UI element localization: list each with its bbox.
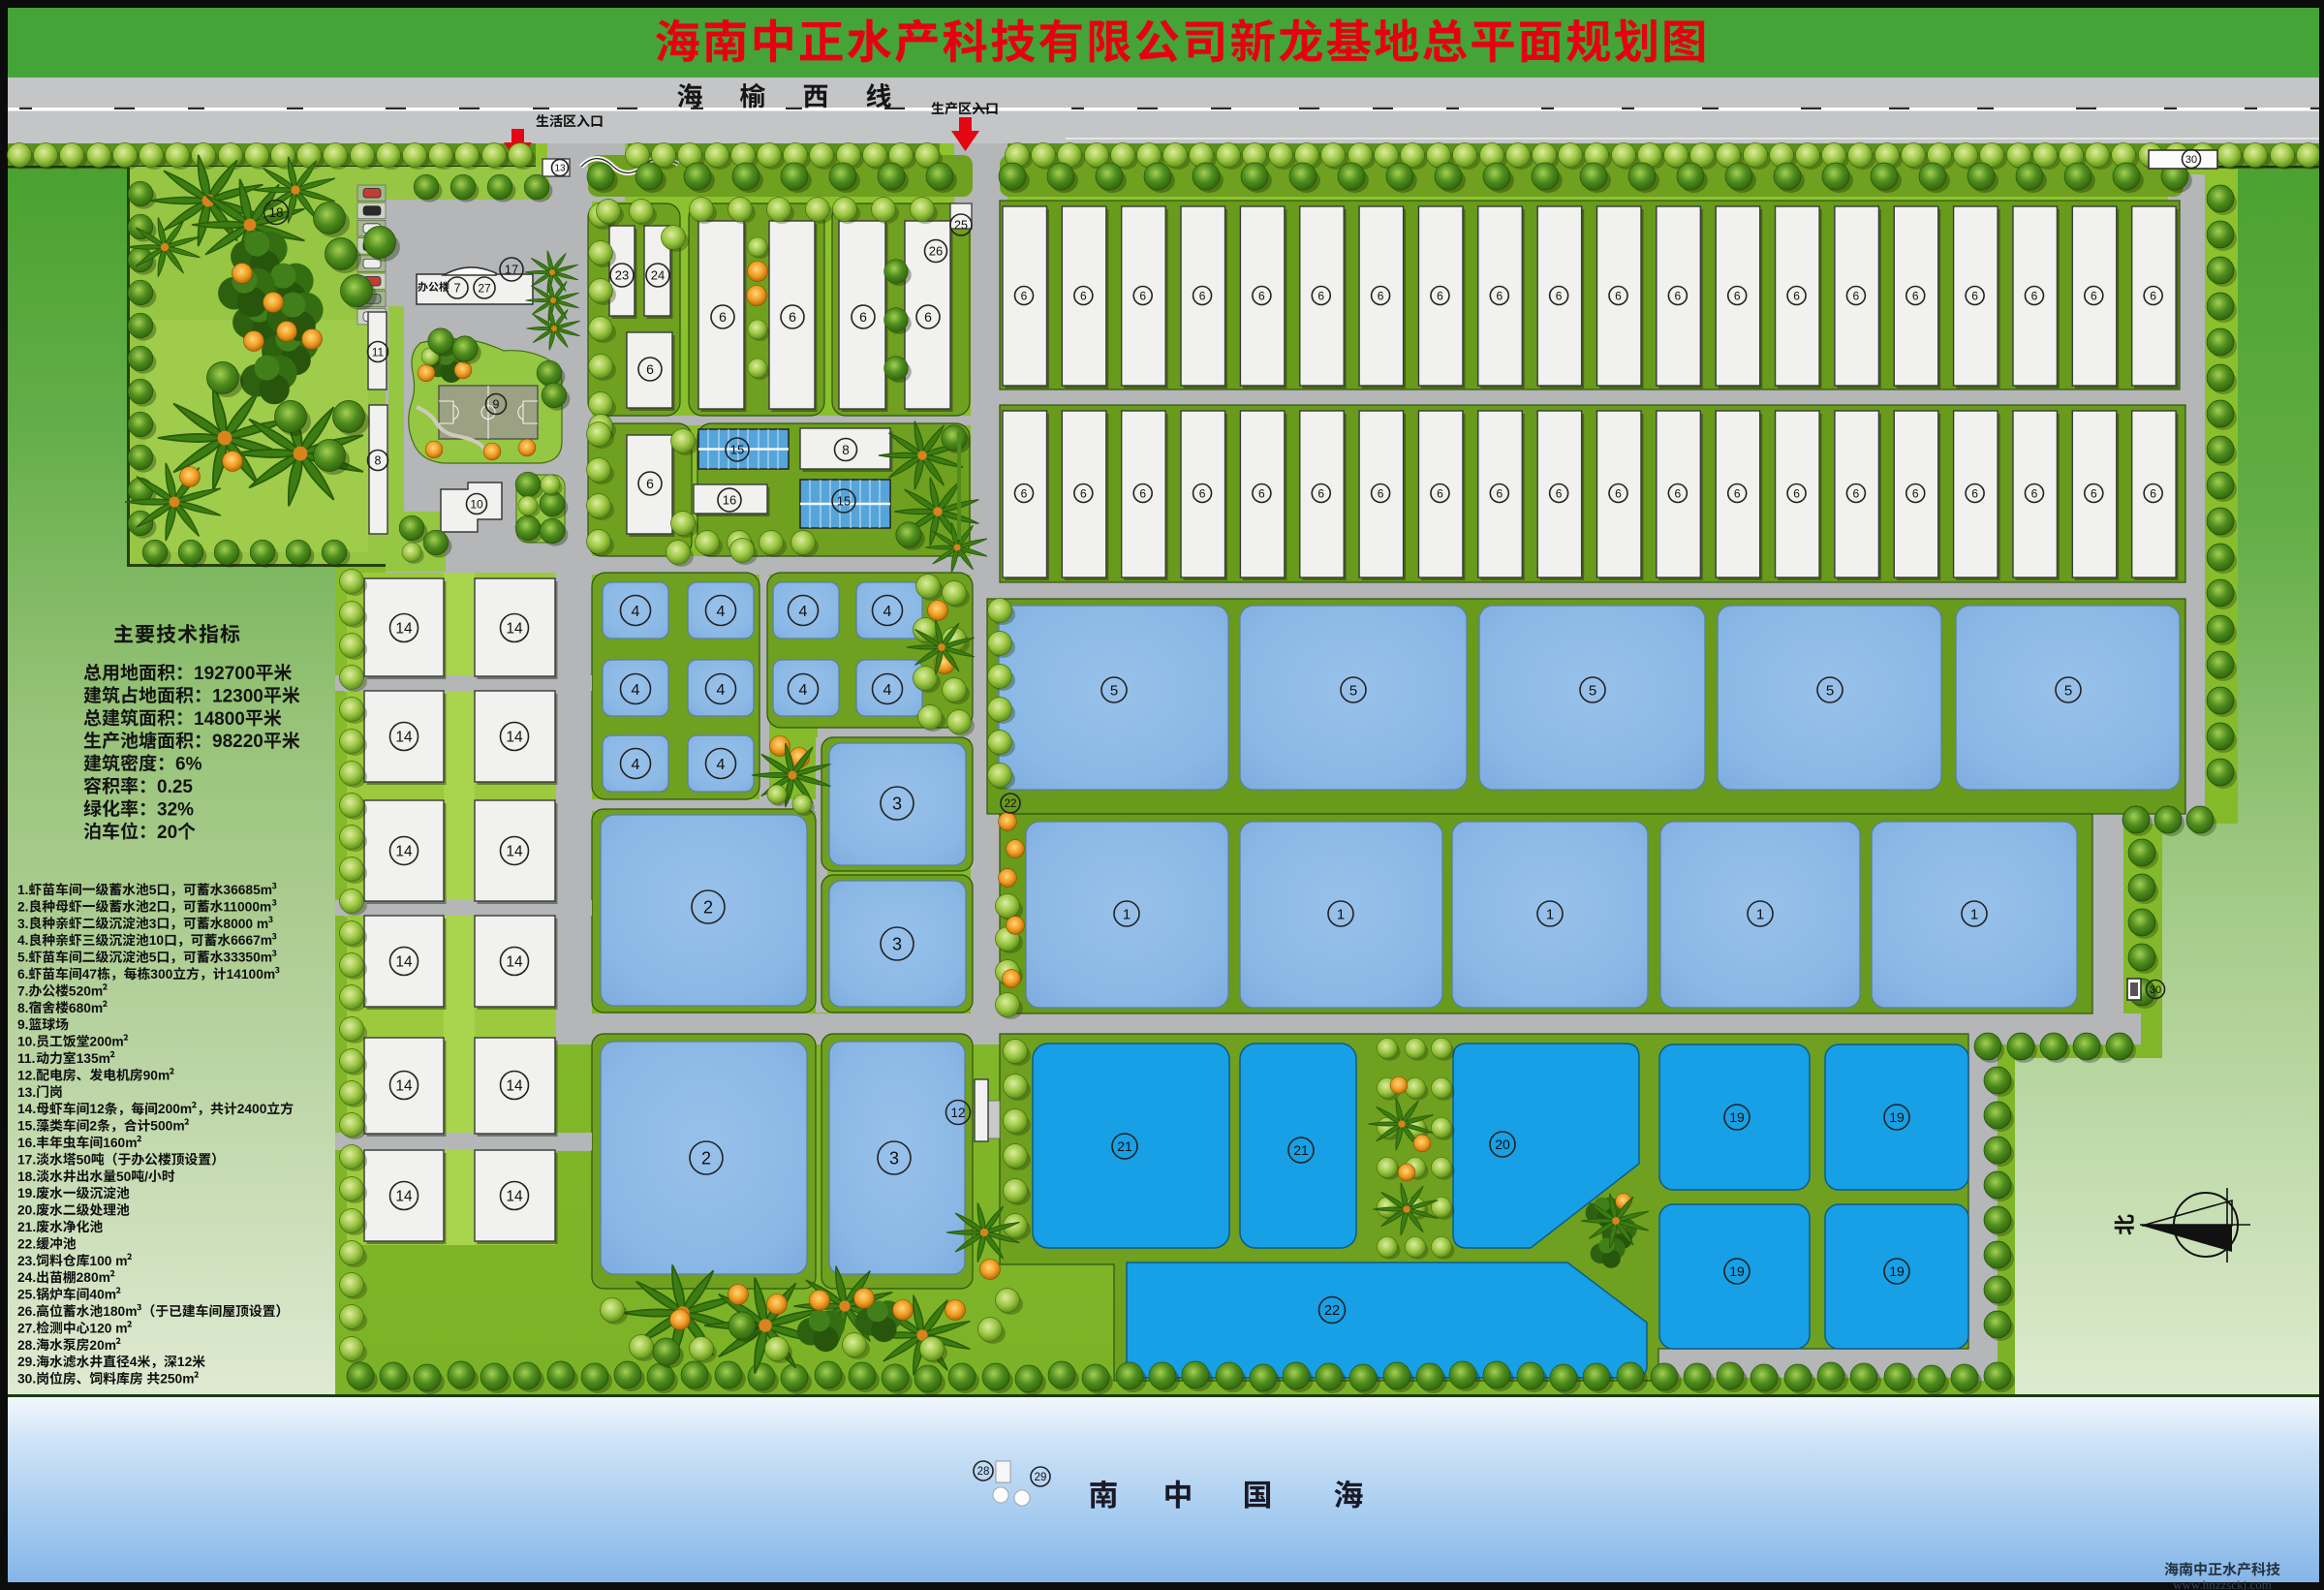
svg-text:3: 3 (889, 1149, 899, 1169)
svg-text:6: 6 (2031, 486, 2038, 500)
svg-text:9: 9 (493, 398, 500, 412)
svg-text:14: 14 (395, 954, 413, 971)
svg-text:6: 6 (1615, 289, 1622, 302)
svg-text:6667m: 6667m (231, 933, 272, 948)
svg-text:1: 1 (1756, 906, 1764, 922)
svg-text:6: 6 (1971, 289, 1978, 302)
svg-text:6: 6 (1912, 289, 1919, 302)
svg-text:3.: 3. (17, 917, 29, 931)
svg-text:20: 20 (157, 823, 177, 843)
svg-text:21.: 21. (17, 1220, 36, 1234)
svg-text:14: 14 (395, 730, 413, 746)
svg-text:30.: 30. (17, 1372, 36, 1387)
svg-text:26.: 26. (17, 1304, 36, 1319)
svg-text:8: 8 (375, 454, 382, 468)
svg-text:6: 6 (1378, 486, 1384, 500)
svg-text:6: 6 (1496, 289, 1503, 302)
svg-text:25: 25 (954, 219, 968, 233)
svg-text:13: 13 (554, 164, 566, 174)
svg-text:16: 16 (723, 493, 736, 508)
svg-text:5: 5 (2064, 682, 2072, 699)
svg-text:4: 4 (717, 682, 726, 699)
svg-text:5: 5 (149, 883, 157, 897)
svg-text:14: 14 (506, 844, 523, 860)
svg-text:4: 4 (799, 682, 808, 699)
svg-text:6: 6 (1734, 486, 1741, 500)
svg-text:15: 15 (730, 443, 744, 457)
svg-text:30: 30 (2185, 154, 2197, 166)
svg-text:27: 27 (478, 281, 491, 295)
svg-text:14800: 14800 (194, 709, 245, 730)
svg-text:200m: 200m (89, 1035, 123, 1049)
svg-text:20: 20 (1495, 1137, 1510, 1152)
svg-text:192700: 192700 (194, 664, 255, 684)
svg-text:6: 6 (1199, 289, 1206, 302)
svg-text:18: 18 (268, 205, 283, 220)
svg-text:23: 23 (615, 268, 629, 283)
svg-text:100 m: 100 m (89, 1254, 127, 1268)
svg-text:20m: 20m (89, 1338, 116, 1353)
svg-text:6: 6 (1080, 289, 1087, 302)
svg-text:8: 8 (842, 443, 850, 457)
svg-text:6: 6 (1853, 486, 1860, 500)
svg-text:135m: 135m (77, 1051, 110, 1066)
svg-text:40m: 40m (89, 1288, 116, 1302)
svg-text:6: 6 (1258, 486, 1265, 500)
svg-text:0.25: 0.25 (157, 777, 193, 797)
svg-text:6: 6 (2150, 289, 2156, 302)
svg-text:6: 6 (1021, 289, 1028, 302)
svg-text:6: 6 (1139, 486, 1146, 500)
svg-text:1: 1 (1123, 906, 1131, 922)
svg-text:47: 47 (82, 967, 98, 982)
svg-text:6: 6 (1615, 486, 1622, 500)
svg-text:6: 6 (1734, 289, 1741, 302)
svg-text:6: 6 (1793, 486, 1800, 500)
svg-text:36685m: 36685m (223, 883, 272, 897)
svg-text:14: 14 (395, 621, 413, 638)
svg-text:6: 6 (924, 309, 932, 325)
svg-text:6: 6 (789, 309, 796, 325)
svg-text:12.: 12. (17, 1068, 36, 1082)
svg-text:5.: 5. (17, 951, 29, 965)
svg-text:11000m: 11000m (223, 899, 271, 914)
svg-text:2.: 2. (17, 899, 29, 914)
svg-text:5: 5 (149, 951, 157, 965)
svg-text:29.: 29. (17, 1355, 36, 1369)
svg-text:2: 2 (701, 1149, 711, 1169)
svg-text:4: 4 (799, 604, 808, 620)
svg-text:1: 1 (1970, 906, 1978, 922)
svg-text:6: 6 (719, 309, 727, 325)
svg-text:18.: 18. (17, 1169, 36, 1184)
svg-text:14: 14 (506, 1078, 523, 1095)
svg-text:6: 6 (1853, 289, 1860, 302)
svg-text:6: 6 (1080, 486, 1087, 500)
svg-text:6: 6 (1556, 289, 1563, 302)
svg-text:8.: 8. (17, 1001, 29, 1015)
svg-text:3: 3 (149, 917, 157, 931)
svg-text:6: 6 (2091, 486, 2097, 500)
svg-text:6: 6 (2150, 486, 2156, 500)
svg-text:200m: 200m (158, 1102, 192, 1116)
svg-text:12300: 12300 (212, 686, 263, 706)
svg-text:4: 4 (130, 1355, 138, 1369)
svg-text:14: 14 (395, 1189, 413, 1205)
svg-text:50: 50 (116, 1169, 132, 1184)
svg-text:7.: 7. (17, 983, 29, 998)
svg-text:19.: 19. (17, 1186, 36, 1200)
svg-text:6: 6 (2091, 289, 2097, 302)
svg-text:27.: 27. (17, 1321, 36, 1335)
svg-text:5: 5 (1589, 682, 1596, 699)
svg-text:26: 26 (929, 244, 943, 259)
svg-text:17: 17 (505, 263, 518, 277)
svg-text:14: 14 (506, 1189, 523, 1205)
svg-text:14: 14 (506, 621, 523, 638)
svg-text:28: 28 (977, 1466, 990, 1478)
svg-text:10.: 10. (17, 1035, 36, 1049)
svg-text:22.: 22. (17, 1236, 36, 1251)
svg-text:33350m: 33350m (223, 951, 272, 965)
svg-text:250m: 250m (160, 1372, 194, 1387)
svg-text:28.: 28. (17, 1338, 36, 1353)
svg-text:280m: 280m (77, 1270, 110, 1285)
svg-text:32%: 32% (157, 799, 194, 820)
svg-text:6: 6 (646, 361, 654, 377)
svg-text:19: 19 (1889, 1263, 1905, 1279)
svg-text:14: 14 (395, 844, 413, 860)
svg-text:6: 6 (1675, 486, 1682, 500)
svg-text:19: 19 (1889, 1109, 1905, 1125)
svg-text:4.: 4. (17, 933, 29, 948)
svg-text:12: 12 (89, 1102, 105, 1116)
svg-text:6: 6 (1556, 486, 1563, 500)
svg-text:8000 m: 8000 m (223, 917, 268, 931)
svg-text:14: 14 (506, 954, 523, 971)
svg-text:5: 5 (1110, 682, 1118, 699)
svg-text:9.: 9. (17, 1017, 29, 1032)
svg-text:14: 14 (506, 730, 523, 746)
svg-text:22: 22 (1005, 798, 1017, 810)
svg-text:14100m: 14100m (227, 967, 276, 982)
svg-text:4: 4 (883, 682, 892, 699)
svg-text:6: 6 (1675, 289, 1682, 302)
svg-text:19: 19 (1729, 1263, 1745, 1279)
svg-text:23.: 23. (17, 1254, 36, 1268)
svg-text:3: 3 (892, 795, 902, 814)
svg-text:15.: 15. (17, 1119, 36, 1134)
svg-text:29: 29 (1035, 1472, 1047, 1483)
svg-text:6: 6 (1437, 486, 1443, 500)
svg-text:20.: 20. (17, 1203, 36, 1218)
svg-text:2: 2 (89, 1119, 97, 1134)
svg-text:98220: 98220 (212, 732, 263, 752)
svg-text:25.: 25. (17, 1288, 36, 1302)
svg-text:1: 1 (1546, 906, 1554, 922)
svg-text:14.: 14. (17, 1102, 36, 1116)
svg-text:6: 6 (1317, 486, 1324, 500)
svg-text:6: 6 (1378, 289, 1384, 302)
svg-text:6: 6 (1496, 486, 1503, 500)
svg-text:12: 12 (177, 1355, 193, 1369)
svg-text:17.: 17. (17, 1152, 36, 1167)
svg-text:6: 6 (1021, 486, 1028, 500)
svg-text:1.: 1. (17, 883, 29, 897)
svg-text:6: 6 (1258, 289, 1265, 302)
svg-text:11: 11 (372, 345, 385, 359)
svg-text:4: 4 (632, 604, 640, 620)
svg-text:/: / (144, 1169, 148, 1184)
svg-text:15: 15 (837, 494, 851, 509)
svg-text:6: 6 (1199, 486, 1206, 500)
svg-text:6: 6 (646, 476, 654, 491)
svg-text:4: 4 (632, 682, 640, 699)
svg-text:3: 3 (892, 935, 902, 954)
svg-text:10: 10 (470, 497, 483, 511)
svg-text:6: 6 (1971, 486, 1978, 500)
svg-text:24: 24 (651, 268, 665, 283)
svg-text:6: 6 (2031, 289, 2038, 302)
svg-text:4: 4 (883, 604, 892, 620)
svg-text:2400: 2400 (237, 1102, 267, 1116)
svg-text:22: 22 (1324, 1303, 1340, 1319)
svg-text:7: 7 (453, 281, 460, 296)
svg-text:2: 2 (703, 898, 713, 918)
svg-text:6.: 6. (17, 967, 29, 982)
svg-text:16.: 16. (17, 1136, 36, 1150)
svg-text:24.: 24. (17, 1270, 36, 1285)
svg-text:1: 1 (1337, 906, 1345, 922)
svg-text:160m: 160m (103, 1136, 137, 1150)
svg-text:21: 21 (1117, 1138, 1132, 1154)
svg-text:14: 14 (395, 1078, 413, 1095)
svg-text:13.: 13. (17, 1085, 36, 1100)
svg-text:500m: 500m (150, 1119, 184, 1134)
svg-text:21: 21 (1293, 1142, 1309, 1158)
svg-text:6: 6 (1437, 289, 1443, 302)
svg-text:180m: 180m (103, 1304, 137, 1319)
svg-text:19: 19 (1729, 1109, 1745, 1125)
svg-text:30: 30 (2150, 984, 2161, 996)
svg-text:10: 10 (149, 933, 165, 948)
svg-text:4: 4 (717, 604, 726, 620)
svg-text:6: 6 (859, 309, 867, 325)
svg-text:5: 5 (1826, 682, 1834, 699)
svg-text:6: 6 (1912, 486, 1919, 500)
svg-text:6: 6 (1793, 289, 1800, 302)
svg-text:11.: 11. (17, 1051, 35, 1066)
svg-text:4: 4 (632, 757, 640, 773)
svg-text:5: 5 (1349, 682, 1357, 699)
svg-text:4: 4 (717, 757, 726, 773)
svg-text:300: 300 (150, 967, 172, 982)
svg-text:12: 12 (950, 1106, 965, 1120)
svg-text:6: 6 (1139, 289, 1146, 302)
svg-text:520m: 520m (69, 983, 103, 998)
svg-text:90m: 90m (143, 1068, 170, 1082)
svg-text:6: 6 (1317, 289, 1324, 302)
svg-text:680m: 680m (69, 1001, 103, 1015)
svg-text:2: 2 (149, 899, 157, 914)
svg-text:120 m: 120 m (89, 1321, 127, 1335)
svg-text:6%: 6% (175, 755, 202, 775)
svg-text:50: 50 (77, 1152, 92, 1167)
svg-text:www.hnzzsckj.com: www.hnzzsckj.com (2173, 1577, 2272, 1590)
